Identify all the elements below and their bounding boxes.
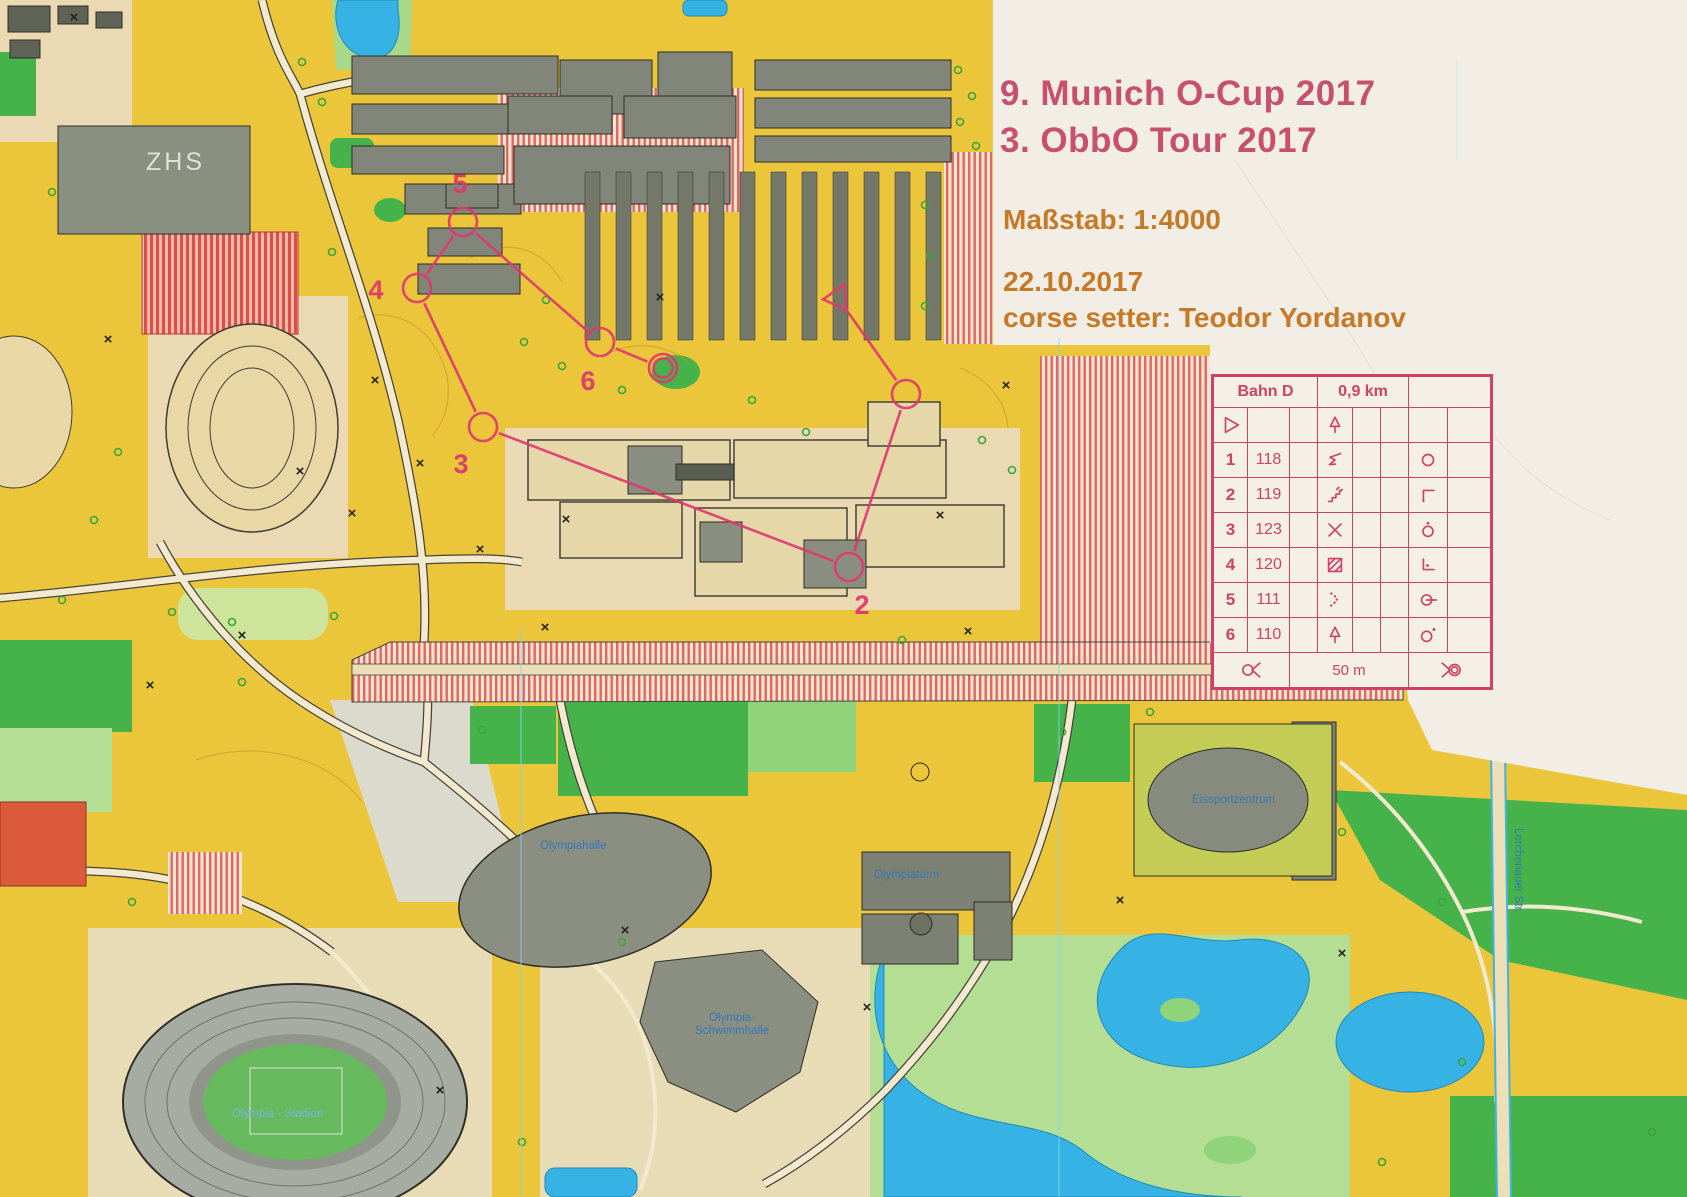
feature-symbol-cell (1318, 408, 1353, 443)
control-number-cell: 2 (1213, 478, 1248, 513)
map-label-olympiaturm: Olympiaturm (874, 869, 939, 881)
feature-symbol-cell (1318, 478, 1353, 513)
feature-symbol-cell (1318, 513, 1353, 548)
control-number-cell: 4 (1213, 548, 1248, 583)
athletics-track (166, 324, 338, 532)
control-number-cell: 5 (1213, 583, 1248, 618)
control-description-card: Bahn D0,9 km11182119312341205111611050 m (1211, 374, 1493, 690)
tree-icon (1324, 624, 1346, 646)
map-label-olympia-schwimmhalle: Olympia-Schwimmhalle (662, 1012, 802, 1038)
feature-symbol-cell (1318, 443, 1353, 478)
rock-cross-symbol: × (1002, 377, 1011, 394)
feature-symbol-cell (1318, 548, 1353, 583)
rock-cross-symbol: × (476, 541, 485, 558)
paved-area-icon (1324, 554, 1346, 576)
position-symbol-cell (1409, 408, 1448, 443)
corner-nw-icon (1417, 484, 1439, 506)
event-title-line2: 3. ObbO Tour 2017 (1000, 121, 1317, 161)
control-row: 3123 (1213, 513, 1492, 548)
circle-dot-top-icon (1417, 519, 1439, 541)
control-code-cell: 110 (1248, 618, 1290, 653)
control-code-cell: 119 (1248, 478, 1290, 513)
control-number-label: 6 (580, 366, 595, 396)
rock-cross-symbol: × (1338, 945, 1347, 962)
rock-cross-symbol: × (1116, 892, 1125, 909)
spur-icon (1324, 449, 1346, 471)
tree-icon (1324, 414, 1346, 436)
control-number-cell: 1 (1213, 443, 1248, 478)
course-setter-text: corse setter: Teodor Yordanov (1003, 302, 1406, 334)
orienteering-map-scan: ×××××××××××××××××××× 23456 ZHSOlympiahal… (0, 0, 1687, 1197)
crossing-icon (1324, 519, 1346, 541)
start-triangle-icon (1220, 414, 1242, 436)
position-symbol-cell (1409, 548, 1448, 583)
control-row (1213, 408, 1492, 443)
rock-cross-symbol: × (238, 627, 247, 644)
control-number-cell: 6 (1213, 618, 1248, 653)
rock-cross-symbol: × (562, 511, 571, 528)
finish-route-start-icon (1238, 659, 1266, 681)
control-number-cell (1213, 408, 1248, 443)
control-number-cell: 3 (1213, 513, 1248, 548)
map-label-olympia-stadion: Olympia - Stadion (232, 1108, 323, 1120)
rock-cross-symbol: × (863, 999, 872, 1016)
map-scale-text: Maßstab: 1:4000 (1003, 204, 1221, 236)
rock-cross-symbol: × (436, 1082, 445, 1099)
control-number-label: 4 (368, 275, 383, 305)
event-date-text: 22.10.2017 (1003, 266, 1143, 298)
circle-dash-icon (1417, 589, 1439, 611)
control-number-label: 2 (854, 590, 869, 620)
feature-symbol-cell (1318, 618, 1353, 653)
control-row: 5111 (1213, 583, 1492, 618)
control-code-cell: 111 (1248, 583, 1290, 618)
control-code-cell: 118 (1248, 443, 1290, 478)
map-label-olympiahalle: Olympiahalle (540, 840, 606, 852)
rock-cross-symbol: × (416, 455, 425, 472)
control-code-cell: 120 (1248, 548, 1290, 583)
stairs-icon (1324, 484, 1346, 506)
finish-symbol-left-cell (1213, 653, 1290, 689)
position-symbol-cell (1409, 618, 1448, 653)
control-number-label: 3 (453, 449, 468, 479)
finish-route-end-icon (1436, 659, 1464, 681)
control-row: 6110 (1213, 618, 1492, 653)
rock-cross-symbol: × (936, 507, 945, 524)
zhs-building (58, 126, 250, 234)
control-code-cell: 123 (1248, 513, 1290, 548)
card-header-empty-cell (1409, 376, 1492, 408)
rock-cross-symbol: × (70, 9, 79, 26)
rock-cross-symbol: × (541, 619, 550, 636)
rock-cross-symbol: × (964, 623, 973, 640)
control-row: 4120 (1213, 548, 1492, 583)
map-label-eissportzentrum: Eissportzentrum (1192, 794, 1275, 806)
finish-symbol-right-cell (1409, 653, 1492, 689)
rock-cross-symbol: × (296, 463, 305, 480)
course-name-cell: Bahn D (1213, 376, 1318, 408)
map-label-zhs: ZHS (146, 148, 205, 177)
rock-cross-symbol: × (656, 289, 665, 306)
corner-sw-dot-icon (1417, 554, 1439, 576)
map-label-lerchenauer-str: Lerchenauer Str. (1512, 828, 1524, 913)
rock-cross-symbol: × (104, 331, 113, 348)
course-length-cell: 0,9 km (1318, 376, 1409, 408)
position-symbol-cell (1409, 513, 1448, 548)
dotted-boundary-icon (1324, 589, 1346, 611)
circle-dot-ne-icon (1417, 624, 1439, 646)
rock-cross-symbol: × (146, 677, 155, 694)
event-title-line1: 9. Munich O-Cup 2017 (1000, 74, 1376, 114)
control-row: 2119 (1213, 478, 1492, 513)
feature-symbol-cell (1318, 583, 1353, 618)
control-row: 1118 (1213, 443, 1492, 478)
rock-cross-symbol: × (371, 372, 380, 389)
control-number-label: 5 (452, 169, 467, 199)
control-code-cell (1248, 408, 1290, 443)
rock-cross-symbol: × (348, 505, 357, 522)
finish-distance-cell: 50 m (1290, 653, 1409, 689)
rock-cross-symbol: × (621, 922, 630, 939)
position-symbol-cell (1409, 443, 1448, 478)
olympiaturm-building (862, 852, 1010, 910)
card-header-row: Bahn D0,9 km (1213, 376, 1492, 408)
circle-icon (1417, 449, 1439, 471)
position-symbol-cell (1409, 583, 1448, 618)
position-symbol-cell (1409, 478, 1448, 513)
finish-row: 50 m (1213, 653, 1492, 689)
